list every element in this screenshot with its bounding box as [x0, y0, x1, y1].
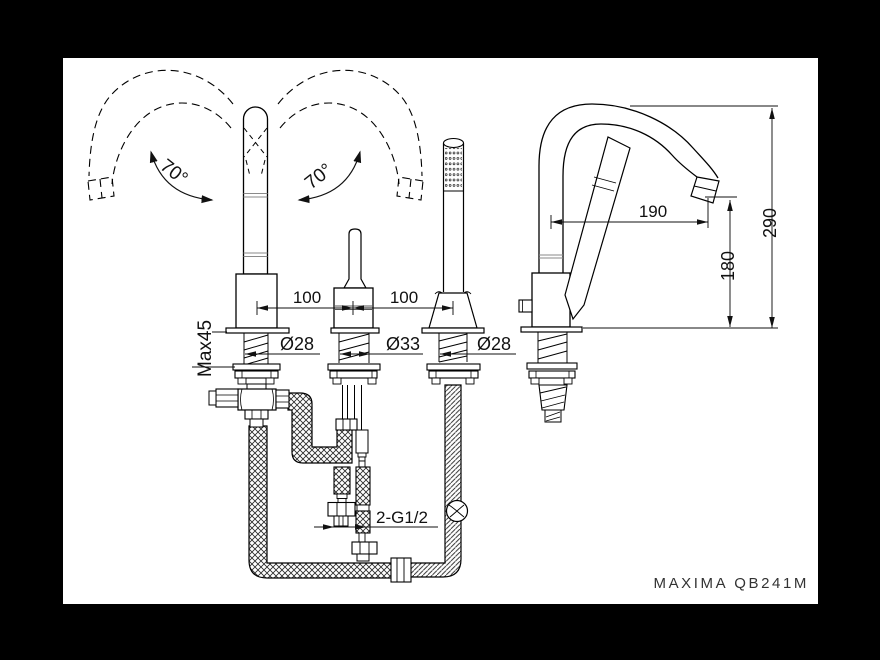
hose-coupling — [391, 558, 411, 582]
drawing-page: 70° 70° — [0, 0, 880, 660]
spout-body — [236, 274, 277, 328]
shower-head-top — [444, 139, 464, 148]
spout-front-view — [244, 107, 268, 274]
side-handle-pin — [519, 300, 532, 312]
spacing-right-label: 100 — [390, 288, 418, 307]
total-height-label: 290 — [760, 208, 780, 238]
mixer-diameter-label: Ø33 — [386, 334, 420, 354]
model-label: MAXIMA QB241M — [653, 575, 809, 592]
mixer-hose-nut — [336, 419, 357, 430]
max-deck-label: Max45 — [195, 320, 216, 377]
side-flange — [521, 327, 582, 332]
technical-drawing: 70° 70° — [0, 0, 880, 660]
supply-connection-label: 2-G1/2 — [376, 508, 428, 527]
spout-height-label: 180 — [718, 251, 738, 281]
shower-flange — [422, 328, 484, 333]
side-body — [532, 273, 570, 327]
spout-reach-label: 190 — [639, 202, 667, 221]
shower-diameter-label: Ø28 — [477, 334, 511, 354]
shower-spray-face — [445, 148, 462, 189]
spout-diameter-label: Ø28 — [280, 334, 314, 354]
mixer-flange — [331, 328, 379, 333]
spout-flange — [226, 328, 289, 333]
hose-ball-connector — [447, 501, 468, 522]
spacing-left-label: 100 — [293, 288, 321, 307]
